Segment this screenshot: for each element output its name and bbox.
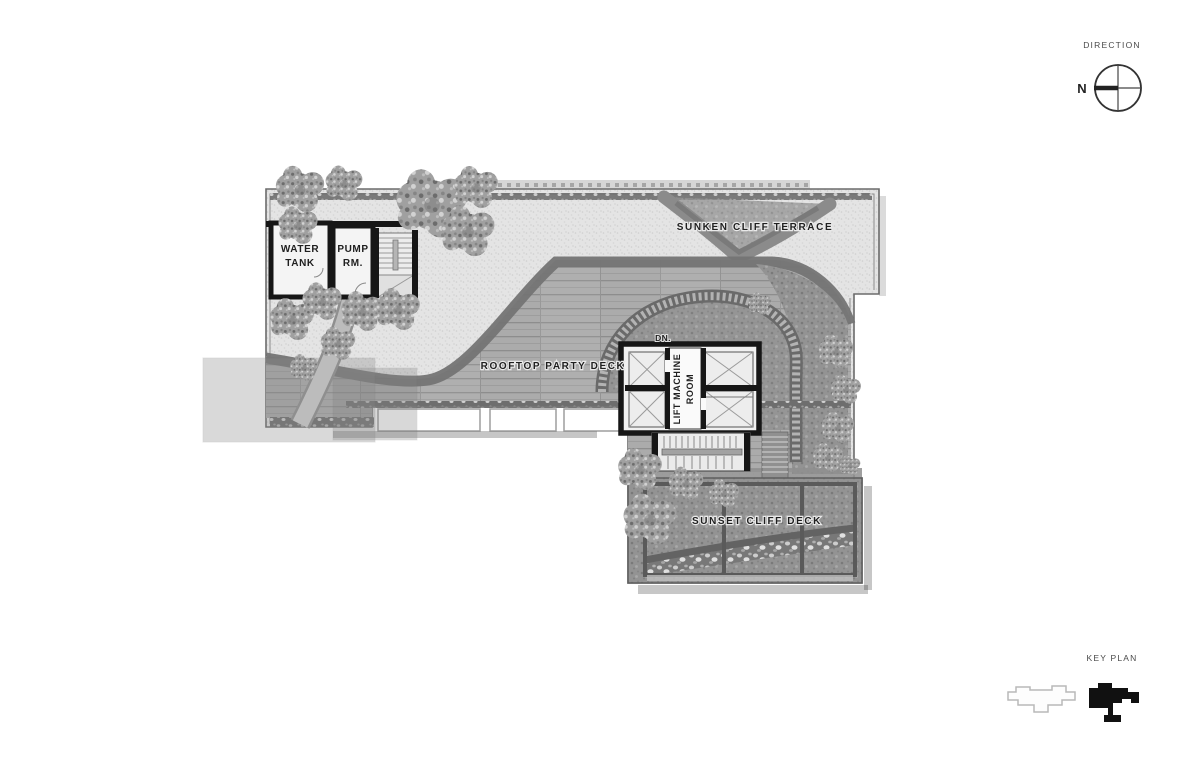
compass: DIRECTION N — [1077, 40, 1142, 112]
plan-canvas: WATER TANK PUMP RM. LIFT MACHINE — [0, 0, 1200, 767]
sunken-cliff-terrace-label: SUNKEN CLIFF TERRACE — [677, 222, 833, 233]
water-tank-label-2: TANK — [285, 258, 315, 269]
sunset-cliff-deck-label: SUNSET CLIFF DECK — [692, 516, 822, 527]
pump-room-label-1: PUMP — [337, 244, 368, 255]
key-plan-context-footprint — [1008, 686, 1075, 712]
lift-machine-room-block: LIFT MACHINE ROOM DN. — [621, 333, 759, 433]
lift-room-label-1: LIFT MACHINE — [672, 354, 682, 425]
key-plan-label: KEY PLAN — [1086, 653, 1137, 663]
direction-label: DIRECTION — [1083, 40, 1141, 50]
garden-steps — [762, 432, 788, 478]
key-plan: KEY PLAN — [1008, 653, 1139, 722]
down-label: DN. — [655, 333, 671, 343]
pump-room-label-2: RM. — [343, 258, 363, 269]
roof-stair — [373, 228, 418, 298]
north-label: N — [1077, 81, 1086, 96]
lower-stair-bay — [652, 433, 750, 471]
water-tank-label-1: WATER — [281, 244, 320, 255]
rooftop-party-deck-label: ROOFTOP PARTY DECK — [481, 361, 626, 372]
rooftop-plan-sheet: WATER TANK PUMP RM. LIFT MACHINE — [0, 0, 1200, 767]
lift-room-label-2: ROOM — [685, 374, 695, 404]
key-plan-highlight-footprint — [1089, 683, 1139, 722]
